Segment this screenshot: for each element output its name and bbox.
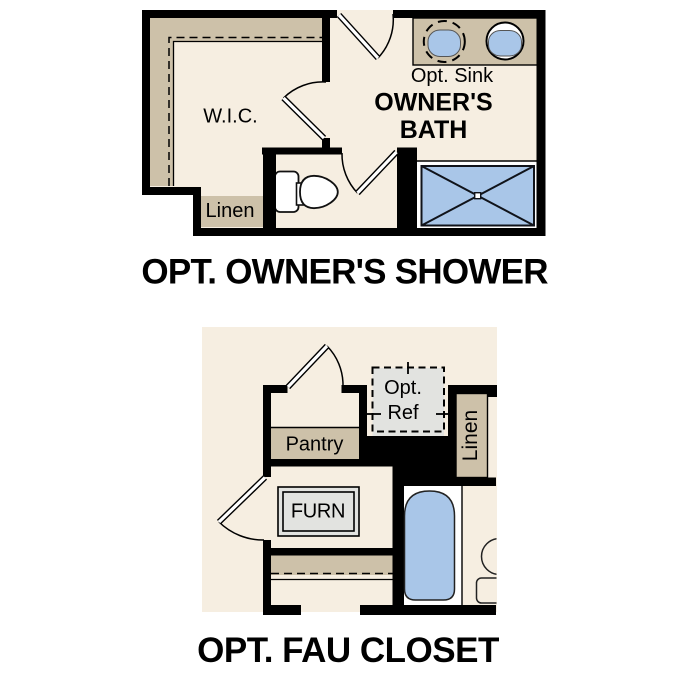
svg-text:Linen: Linen (206, 200, 255, 222)
svg-text:Linen: Linen (459, 410, 482, 461)
svg-text:Ref: Ref (387, 402, 419, 424)
svg-text:FURN: FURN (291, 500, 345, 522)
svg-text:Opt.: Opt. (384, 377, 422, 399)
svg-text:OWNER'S: OWNER'S (374, 89, 492, 117)
svg-text:Pantry: Pantry (286, 434, 344, 456)
svg-text:Opt. Sink: Opt. Sink (411, 65, 494, 87)
svg-text:W.I.C.: W.I.C. (203, 105, 257, 127)
svg-text:OPT. OWNER'S SHOWER: OPT. OWNER'S SHOWER (141, 253, 548, 292)
svg-text:OPT. FAU CLOSET: OPT. FAU CLOSET (197, 631, 499, 670)
svg-text:BATH: BATH (400, 116, 468, 144)
